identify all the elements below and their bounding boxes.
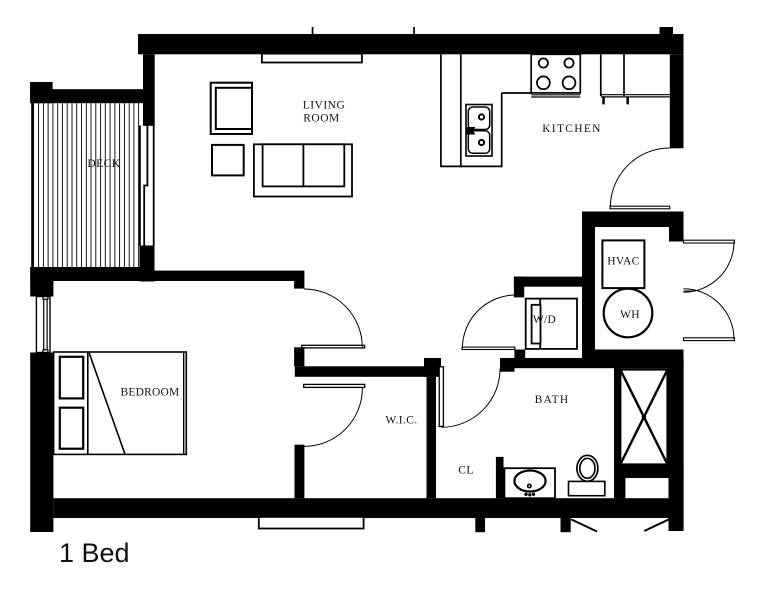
svg-text:BEDROOM: BEDROOM bbox=[121, 387, 180, 399]
svg-text:1 Bed: 1 Bed bbox=[59, 538, 130, 568]
svg-text:WH: WH bbox=[620, 309, 640, 321]
svg-text:W.I.C.: W.I.C. bbox=[385, 415, 417, 427]
svg-text:DECK: DECK bbox=[87, 158, 121, 170]
svg-text:LIVING: LIVING bbox=[303, 100, 346, 112]
svg-text:CL: CL bbox=[458, 465, 474, 477]
svg-text:ROOM: ROOM bbox=[303, 113, 340, 125]
svg-text:KITCHEN: KITCHEN bbox=[542, 123, 602, 135]
svg-text:BATH: BATH bbox=[535, 394, 570, 406]
svg-text:HVAC: HVAC bbox=[607, 256, 639, 268]
svg-text:W/D: W/D bbox=[533, 314, 556, 326]
